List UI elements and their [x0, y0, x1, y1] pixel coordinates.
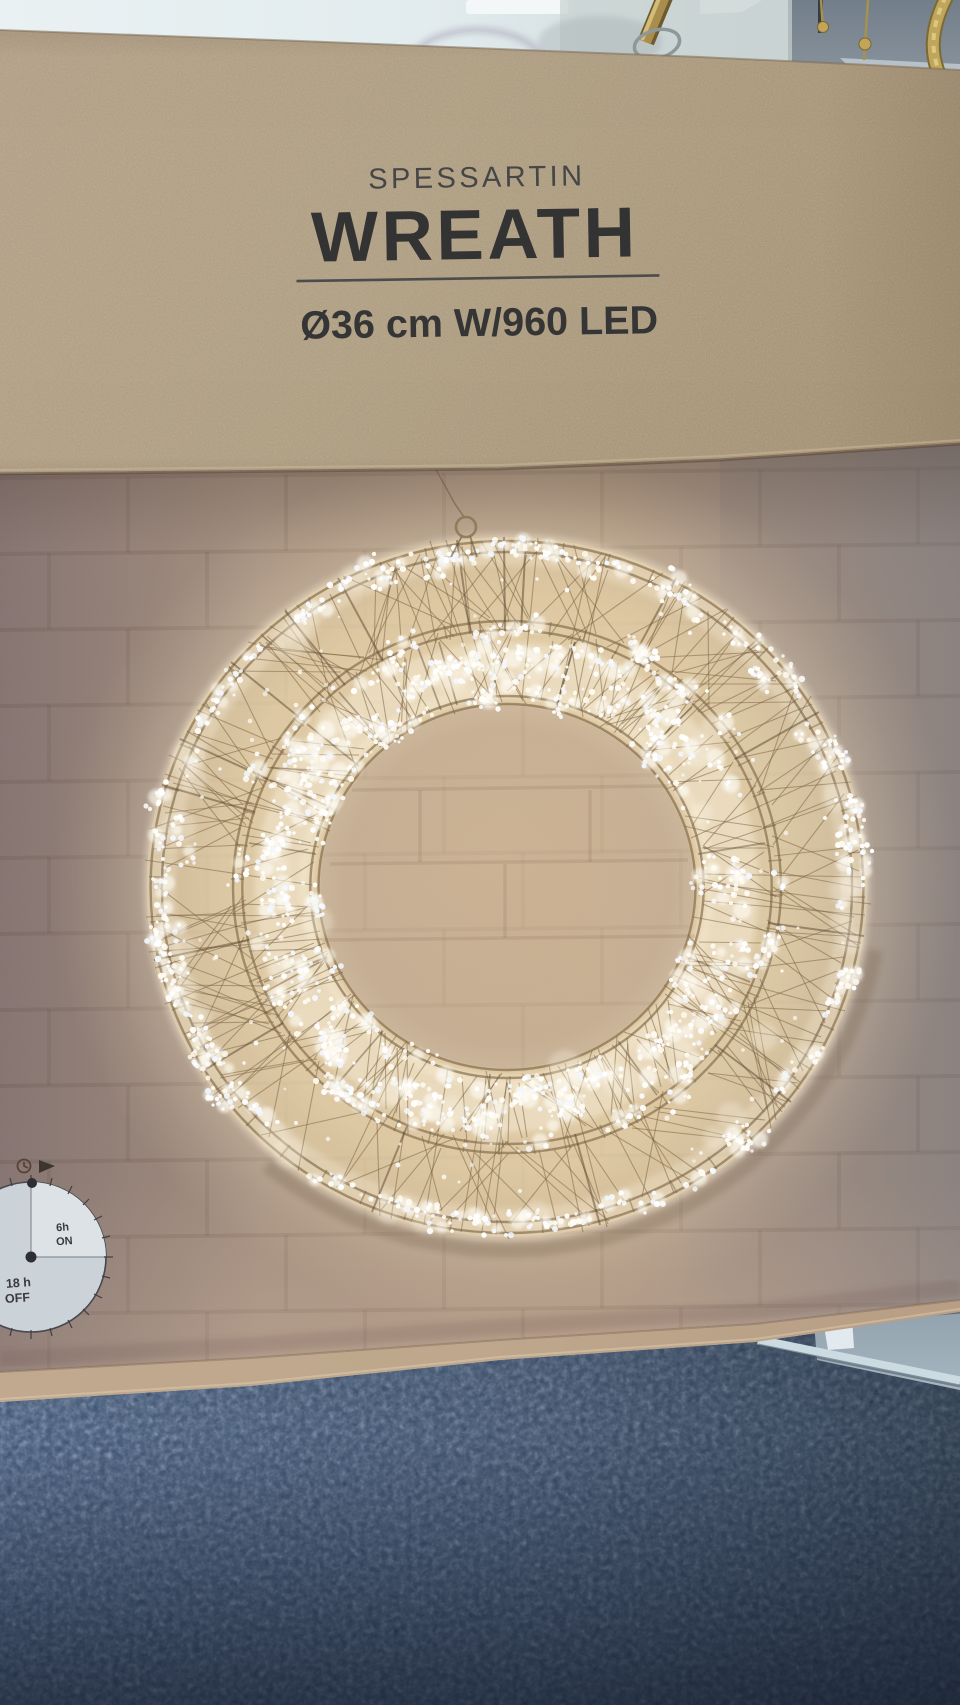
svg-text:WREATH: WREATH	[311, 193, 639, 277]
svg-text:OFF: OFF	[4, 1290, 30, 1306]
svg-text:ON: ON	[56, 1235, 73, 1248]
svg-text:18 h: 18 h	[5, 1275, 31, 1291]
svg-text:SPESSARTIN: SPESSARTIN	[368, 160, 586, 195]
svg-text:Ø36 cm W/960 LED: Ø36 cm W/960 LED	[300, 298, 658, 348]
svg-text:6h: 6h	[56, 1221, 70, 1234]
